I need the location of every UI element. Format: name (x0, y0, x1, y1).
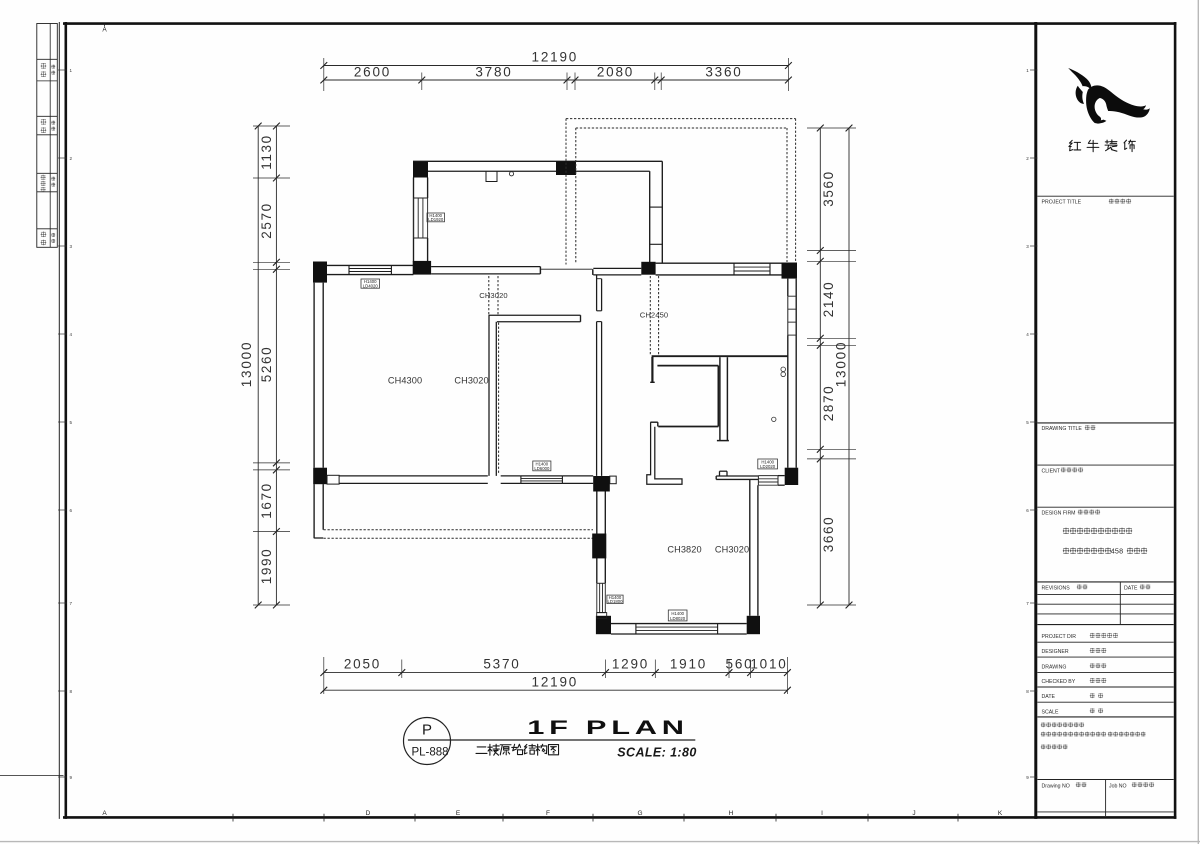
svg-text:I: I (821, 810, 823, 817)
svg-text:LD8020: LD8020 (670, 616, 686, 621)
svg-text:CHECKED BY: CHECKED BY (1042, 679, 1076, 685)
svg-text:5370: 5370 (483, 657, 520, 672)
svg-text:DESIGNER: DESIGNER (1042, 649, 1069, 655)
svg-text:1290: 1290 (612, 657, 649, 672)
svg-text:LD2020: LD2020 (760, 464, 776, 469)
svg-text:DESIGN FIRM: DESIGN FIRM (1042, 511, 1076, 517)
svg-text:560: 560 (726, 657, 754, 672)
svg-text:3660: 3660 (821, 516, 836, 552)
svg-text:G: G (637, 810, 642, 817)
svg-text:1910: 1910 (670, 657, 707, 672)
svg-text:13000: 13000 (239, 341, 254, 388)
svg-text:Job NO: Job NO (1109, 783, 1127, 789)
svg-text:PL-888: PL-888 (411, 747, 448, 759)
svg-text:2080: 2080 (597, 65, 634, 80)
svg-text:K: K (998, 810, 1003, 817)
svg-text:1990: 1990 (259, 548, 274, 584)
svg-text:3560: 3560 (821, 170, 836, 206)
svg-text:458: 458 (1111, 546, 1124, 555)
svg-text:12190: 12190 (532, 50, 579, 65)
svg-text:2870: 2870 (821, 385, 836, 421)
svg-text:13000: 13000 (834, 341, 849, 388)
svg-text:PROJECT TITLE: PROJECT TITLE (1042, 200, 1082, 206)
svg-text:LD6000: LD6000 (534, 466, 550, 471)
svg-text:5260: 5260 (259, 346, 274, 382)
svg-text:1130: 1130 (259, 134, 274, 169)
svg-text:LD4020: LD4020 (363, 283, 379, 288)
svg-text:E: E (456, 810, 461, 817)
svg-text:F: F (546, 810, 550, 817)
svg-text:DATE: DATE (1124, 585, 1138, 591)
svg-text:2050: 2050 (344, 657, 381, 672)
svg-text:REVISIONS: REVISIONS (1042, 585, 1071, 591)
svg-text:1F PLAN: 1F PLAN (527, 717, 688, 738)
svg-text:LD1800: LD1800 (607, 599, 623, 604)
svg-text:H: H (729, 810, 734, 817)
svg-text:SCALE: 1:80: SCALE: 1:80 (617, 746, 696, 760)
svg-text:12190: 12190 (532, 675, 579, 690)
svg-text:1670: 1670 (259, 482, 274, 518)
svg-text:Drawing NO: Drawing NO (1042, 783, 1070, 789)
svg-text:CLIENT: CLIENT (1042, 468, 1061, 474)
svg-text:LD1920: LD1920 (428, 217, 444, 222)
svg-text:CH2450: CH2450 (640, 311, 668, 320)
svg-text:1010: 1010 (750, 657, 787, 672)
svg-text:2570: 2570 (259, 202, 274, 238)
svg-text:D: D (366, 810, 371, 817)
svg-text:3360: 3360 (705, 65, 742, 80)
svg-text:J: J (912, 810, 915, 817)
svg-text:SCALE: SCALE (1042, 709, 1060, 715)
svg-text:DATE: DATE (1042, 694, 1056, 700)
svg-text:PROJECT DIR: PROJECT DIR (1042, 634, 1077, 640)
svg-text:DRAWING TITLE: DRAWING TITLE (1042, 426, 1083, 432)
svg-text:P: P (422, 722, 432, 739)
svg-text:3780: 3780 (475, 65, 512, 80)
svg-text:CH3820: CH3820 (667, 545, 701, 555)
svg-text:2600: 2600 (354, 65, 391, 80)
svg-text:DRAWING: DRAWING (1042, 664, 1067, 670)
svg-text:2140: 2140 (821, 281, 836, 317)
svg-text:A: A (102, 27, 107, 34)
svg-text:CH3020: CH3020 (454, 376, 488, 386)
svg-text:CH3020: CH3020 (715, 545, 749, 555)
svg-text:CH4300: CH4300 (388, 376, 422, 386)
svg-text:CH3020: CH3020 (479, 291, 507, 300)
svg-text:A: A (102, 810, 107, 817)
